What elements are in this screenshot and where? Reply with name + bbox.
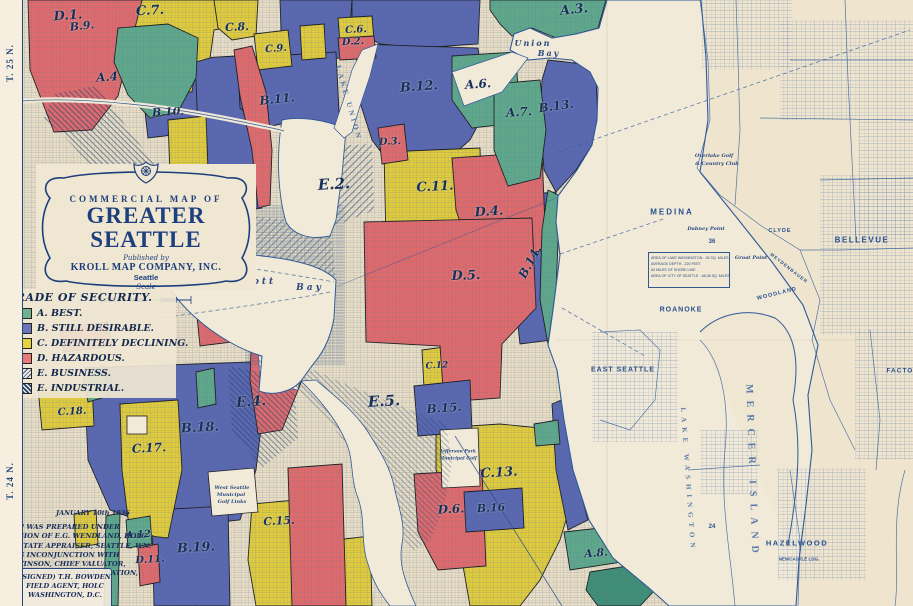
legend-item-label: C. DEFINITELY DECLINING. [37, 338, 188, 349]
note-line: DEPUTY STATE APPRAISER, SEATTLE, WN. [0, 542, 169, 551]
legend-title: GRADE OF SECURITY. [6, 291, 176, 304]
title-cartouche: COMMERCIAL MAP OF GREATER SEATTLE Publis… [36, 164, 256, 290]
signature-line: FIELD AGENT, HOLC [19, 582, 111, 591]
signature-line: WASHINGTON, D.C. [19, 591, 111, 600]
holc-redlining-map-screenshot: D.1.B.9.C.7.C.8.C.9.A.4B.10.B.11.C.6.D.2… [0, 0, 913, 606]
legend-item-definitelydeclining: C. DEFINITELY DECLINING. [6, 336, 176, 351]
lake-stats-box: AREA OF LAKE WASHINGTON - 26 SQ. MILESAV… [648, 252, 730, 288]
signature-box: (SIGNED) T.H. BOWDENFIELD AGENT, HOLCWAS… [18, 568, 112, 606]
lake-stat-line: AREA OF CITY OF SEATTLE - 68.38 SQ. MILE… [651, 273, 727, 279]
legend-item-label: E. BUSINESS. [37, 368, 111, 379]
legend-item-stilldesirable: B. STILL DESIRABLE. [6, 321, 176, 336]
note-line: WORKING INCONJUNCTION WITH [0, 551, 169, 560]
legend-rows: A. BEST.B. STILL DESIRABLE.C. DEFINITELY… [6, 306, 176, 396]
note-line: SUPERVISION OF E.G. WENDLAND, HOLC [0, 532, 169, 541]
legend: GRADE OF SECURITY. A. BEST.B. STILL DESI… [4, 289, 176, 398]
signature-line: (SIGNED) T.H. BOWDEN [19, 573, 111, 582]
township-label-t25n: T. 25 N. [5, 44, 15, 82]
legend-item-industrial: E. INDUSTRIAL. [6, 381, 176, 396]
map-margin: T. 25 N. T. 24 N. [0, 0, 23, 606]
legend-item-best: A. BEST. [6, 306, 176, 321]
publisher-crest-icon [128, 160, 164, 190]
legend-item-label: E. INDUSTRIAL. [37, 383, 124, 394]
township-label-t24n: T. 24 N. [5, 462, 15, 500]
note-line: THIS MAP WAS PREPARED UNDER [0, 523, 169, 532]
lake-union [279, 118, 346, 237]
legend-item-label: B. STILL DESIRABLE. [37, 323, 154, 334]
legend-item-business: E. BUSINESS. [6, 366, 176, 381]
legend-item-label: D. HAZARDOUS. [37, 353, 125, 364]
note-date: JANUARY 10th 1936 [56, 509, 169, 517]
legend-item-hazardous: D. HAZARDOUS. [6, 351, 176, 366]
legend-item-label: A. BEST. [37, 308, 82, 319]
